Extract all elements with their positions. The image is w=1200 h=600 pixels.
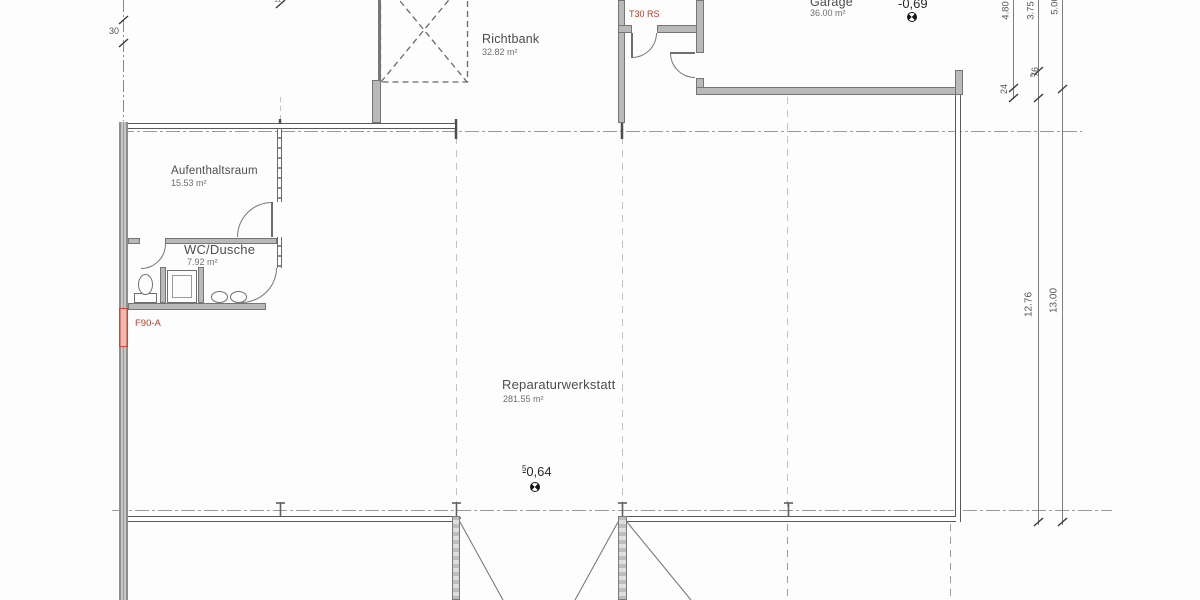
washbasin-2 (230, 291, 247, 303)
room-label-werkstatt: Reparaturwerkstatt (502, 377, 615, 392)
level-symbol-hall (530, 482, 540, 492)
fire-door-label-t30: T30 RS (629, 9, 660, 19)
bay-wall-left-line (378, 0, 381, 82)
wall-end-ticks (280, 119, 622, 139)
garage-wall-right-stub (955, 70, 963, 95)
door-leaf-t30 (631, 33, 633, 58)
room-area-wc: 7.92 m² (187, 257, 218, 267)
corridor-wall-left (618, 0, 625, 123)
exterior-wall-top (128, 123, 455, 129)
door-leaf-corridor-garage (670, 52, 695, 54)
room-area-aufenthaltsraum: 15.53 m² (171, 178, 207, 188)
room-label-wc: WC/Dusche (184, 242, 255, 257)
gate-diagonals (460, 522, 691, 600)
room-area-richtbank: 32.82 m² (482, 47, 518, 57)
room-area-garage: 36.00 m² (810, 8, 846, 18)
grid-lines-light (281, 97, 951, 600)
floor-plan-canvas: Richtbank 32.82 m² Garage 36.00 m² Aufen… (0, 0, 1200, 600)
bay-wall-left-stub (372, 80, 381, 123)
dim-5-00: 5.00 (1050, 0, 1061, 26)
exterior-wall-bottom-right (626, 516, 956, 522)
exterior-wall-right (955, 95, 961, 522)
dim-3-75: 3.75 (1026, 0, 1037, 31)
corridor-wall-right (696, 0, 704, 53)
room-area-werkstatt: 281.55 m² (503, 394, 544, 404)
room-label-richtbank: Richtbank (482, 32, 539, 46)
wc-wall-top-a (128, 238, 140, 244)
door-leaf-aufenthaltsraum (271, 202, 273, 237)
wc-stall-wall-2 (198, 267, 204, 303)
dim-11-partial: 11 (274, 0, 281, 4)
exterior-wall-bottom-left (128, 516, 452, 522)
dim-13-00: 13.00 (1049, 279, 1060, 323)
dimension-lines (1014, 0, 1063, 525)
dim-4-80: 4.80 (1001, 0, 1012, 31)
fire-wall-f90-segment (119, 308, 128, 347)
gate-post-right (618, 516, 627, 600)
level-symbol-garage (907, 12, 917, 22)
washbasin-1 (211, 291, 228, 303)
corridor-wall-top-a (618, 25, 632, 33)
dim-24: 24 (999, 74, 1009, 104)
shower-inner (172, 275, 192, 298)
fire-wall-label-f90: F90-A (135, 318, 161, 329)
dim-12-76: 12.76 (1024, 283, 1035, 327)
partition-wall-upper (277, 129, 282, 202)
wc-wall-bottom (128, 303, 266, 310)
dim-30: 30 (109, 26, 119, 36)
room-label-aufenthaltsraum: Aufenthaltsraum (171, 165, 258, 177)
partition-wall-mid (277, 237, 282, 268)
exterior-wall-left (119, 122, 128, 600)
toilet-bowl (138, 274, 153, 295)
wc-stall-wall-1 (160, 267, 166, 303)
richtbank-crane-field (381, 0, 468, 82)
gate-post-left (452, 516, 460, 600)
dimension-ticks (119, 0, 1067, 526)
garage-wall-bottom (696, 87, 963, 95)
